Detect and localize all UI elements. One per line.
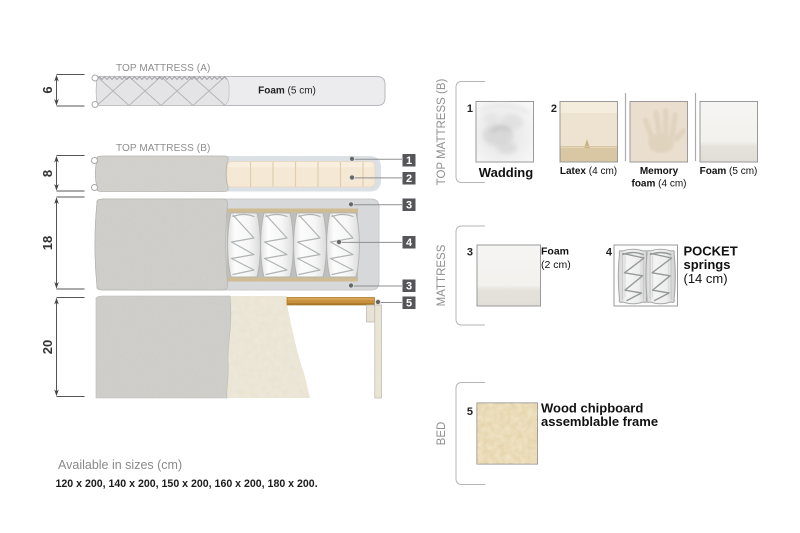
svg-text:springs: springs [684,257,731,272]
svg-text:20: 20 [40,340,55,354]
svg-text:Foam (5 cm): Foam (5 cm) [258,86,316,97]
svg-text:TOP MATTRESS (B): TOP MATTRESS (B) [116,143,210,154]
svg-text:Memory: Memory [640,166,679,177]
svg-text:4: 4 [406,237,413,249]
svg-text:5: 5 [467,406,473,418]
svg-text:(14 cm): (14 cm) [684,271,728,286]
svg-text:2: 2 [551,103,557,115]
svg-text:2: 2 [406,173,412,185]
svg-text:6: 6 [40,86,55,93]
svg-text:18: 18 [40,236,55,250]
svg-text:3: 3 [406,200,412,212]
svg-text:8: 8 [40,170,55,177]
svg-text:3: 3 [406,281,412,293]
svg-text:(2 cm): (2 cm) [541,259,571,271]
svg-text:3: 3 [467,247,473,259]
svg-text:foam (4 cm): foam (4 cm) [631,179,686,190]
svg-text:1: 1 [467,103,473,115]
svg-text:MATTRESS: MATTRESS [436,244,448,306]
svg-text:BED: BED [436,422,448,446]
svg-text:5: 5 [406,298,412,310]
svg-text:TOP MATTRESS (A): TOP MATTRESS (A) [116,63,210,74]
svg-text:TOP MATTRESS (B): TOP MATTRESS (B) [436,78,448,185]
svg-text:Latex (4 cm): Latex (4 cm) [560,166,617,177]
svg-text:1: 1 [406,155,412,167]
svg-text:120 x 200, 140 x 200, 150 x 20: 120 x 200, 140 x 200, 150 x 200, 160 x 2… [56,478,318,490]
svg-text:4: 4 [606,247,613,259]
svg-text:Foam (5 cm): Foam (5 cm) [700,166,758,177]
svg-text:Available in sizes (cm): Available in sizes (cm) [58,458,182,472]
svg-text:assemblable frame: assemblable frame [541,414,658,429]
svg-text:Wadding: Wadding [479,165,533,180]
svg-text:Foam: Foam [541,246,569,258]
